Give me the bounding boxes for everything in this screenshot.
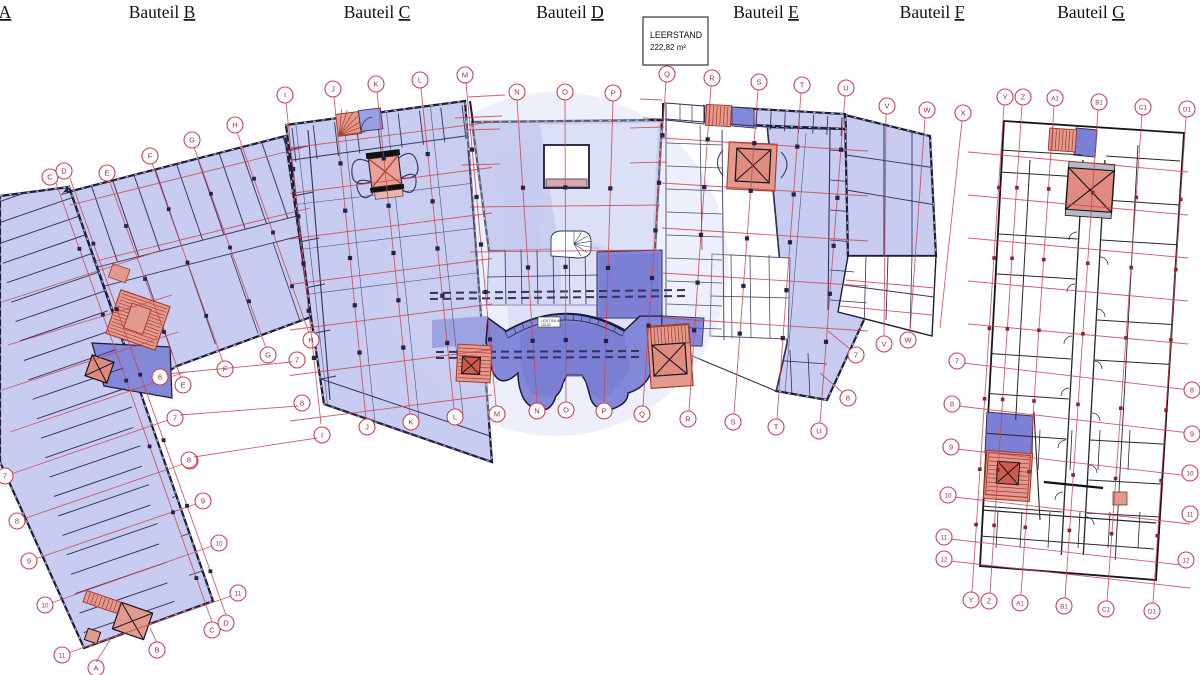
svg-text:9: 9 xyxy=(1190,430,1194,439)
svg-text:E: E xyxy=(104,169,109,178)
svg-text:B1: B1 xyxy=(1095,100,1103,107)
svg-text:T: T xyxy=(800,81,805,90)
svg-text:I: I xyxy=(321,431,323,440)
svg-text:G: G xyxy=(265,351,271,360)
svg-text:9: 9 xyxy=(949,443,953,452)
svg-text:12: 12 xyxy=(941,557,948,564)
svg-text:K: K xyxy=(408,418,413,427)
svg-text:9: 9 xyxy=(27,557,31,566)
svg-text:P: P xyxy=(601,407,606,416)
svg-text:F: F xyxy=(223,365,228,374)
svg-text:O: O xyxy=(563,406,569,415)
svg-text:C1: C1 xyxy=(1139,105,1147,112)
svg-text:J: J xyxy=(365,423,369,432)
svg-text:S: S xyxy=(756,78,761,87)
svg-text:A: A xyxy=(93,664,98,673)
svg-text:222,82 m²: 222,82 m² xyxy=(650,43,686,52)
svg-text:H: H xyxy=(232,121,237,130)
svg-text:Bauteil D: Bauteil D xyxy=(536,2,604,22)
svg-text:8: 8 xyxy=(300,399,304,408)
svg-text:10: 10 xyxy=(945,493,952,500)
svg-text:7: 7 xyxy=(3,472,7,481)
svg-text:S: S xyxy=(730,418,735,427)
svg-text:K: K xyxy=(373,80,378,89)
svg-text:L: L xyxy=(453,413,457,422)
svg-text:Q: Q xyxy=(664,70,670,79)
svg-text:B: B xyxy=(154,646,159,655)
svg-text:E: E xyxy=(180,381,185,390)
svg-text:C1: C1 xyxy=(1102,607,1110,614)
svg-text:6: 6 xyxy=(158,373,162,382)
svg-text:10: 10 xyxy=(216,541,223,548)
svg-text:7: 7 xyxy=(173,414,177,423)
svg-text:U: U xyxy=(843,84,848,93)
svg-text:A1: A1 xyxy=(1051,96,1059,103)
svg-text:C: C xyxy=(209,626,215,635)
svg-text:8: 8 xyxy=(846,394,850,403)
svg-text:Bauteil B: Bauteil B xyxy=(129,2,196,22)
svg-text:F: F xyxy=(148,152,153,161)
svg-text:8: 8 xyxy=(950,400,954,409)
svg-text:7: 7 xyxy=(854,351,858,360)
svg-text:8: 8 xyxy=(1190,386,1194,395)
svg-text:W: W xyxy=(904,336,912,345)
svg-text:V: V xyxy=(884,102,889,111)
svg-text:B1: B1 xyxy=(1060,604,1068,611)
svg-text:Z: Z xyxy=(987,597,992,606)
svg-text:8: 8 xyxy=(187,456,191,465)
svg-text:J: J xyxy=(331,85,335,94)
svg-text:Y: Y xyxy=(968,596,973,605)
svg-text:D: D xyxy=(61,167,67,176)
svg-text:R: R xyxy=(709,74,715,83)
svg-text:10: 10 xyxy=(42,603,49,610)
svg-text:Q: Q xyxy=(639,410,645,419)
svg-text:O: O xyxy=(562,88,568,97)
svg-text:Bauteil G: Bauteil G xyxy=(1057,2,1125,22)
svg-text:M: M xyxy=(494,410,500,419)
svg-text:11: 11 xyxy=(59,653,66,660)
svg-text:D1: D1 xyxy=(1148,609,1156,616)
svg-text:11: 11 xyxy=(1187,512,1194,519)
svg-text:Bauteil A: Bauteil A xyxy=(0,2,12,22)
svg-text:U: U xyxy=(816,427,821,436)
svg-text:L: L xyxy=(418,76,422,85)
svg-text:G: G xyxy=(189,136,195,145)
svg-text:M: M xyxy=(462,71,468,80)
svg-text:222,82: 222,82 xyxy=(541,323,551,327)
svg-text:D: D xyxy=(223,619,229,628)
svg-text:7: 7 xyxy=(955,357,959,366)
svg-text:11: 11 xyxy=(235,591,242,598)
svg-text:N: N xyxy=(534,407,539,416)
svg-text:R: R xyxy=(685,415,691,424)
svg-text:9: 9 xyxy=(201,497,205,506)
svg-text:Bauteil C: Bauteil C xyxy=(344,2,411,22)
svg-text:10: 10 xyxy=(1187,471,1194,478)
svg-text:8: 8 xyxy=(15,517,19,526)
svg-text:D1: D1 xyxy=(1183,107,1191,114)
svg-text:7: 7 xyxy=(295,356,299,365)
svg-text:X: X xyxy=(960,109,965,118)
svg-text:N: N xyxy=(514,88,519,97)
svg-text:Z: Z xyxy=(1021,93,1026,102)
svg-text:Bauteil F: Bauteil F xyxy=(900,2,965,22)
svg-text:W: W xyxy=(923,106,931,115)
svg-text:11: 11 xyxy=(941,535,948,542)
svg-text:A1: A1 xyxy=(1016,601,1024,608)
svg-text:C: C xyxy=(47,173,53,182)
svg-text:I: I xyxy=(284,91,286,100)
svg-text:V: V xyxy=(881,340,886,349)
svg-text:12: 12 xyxy=(1183,558,1190,565)
svg-text:Bauteil E: Bauteil E xyxy=(733,2,799,22)
svg-text:LEERSTAND: LEERSTAND xyxy=(650,30,702,40)
svg-text:T: T xyxy=(774,423,779,432)
svg-text:Y: Y xyxy=(1002,93,1007,102)
svg-text:H: H xyxy=(308,336,313,345)
svg-text:P: P xyxy=(610,89,615,98)
